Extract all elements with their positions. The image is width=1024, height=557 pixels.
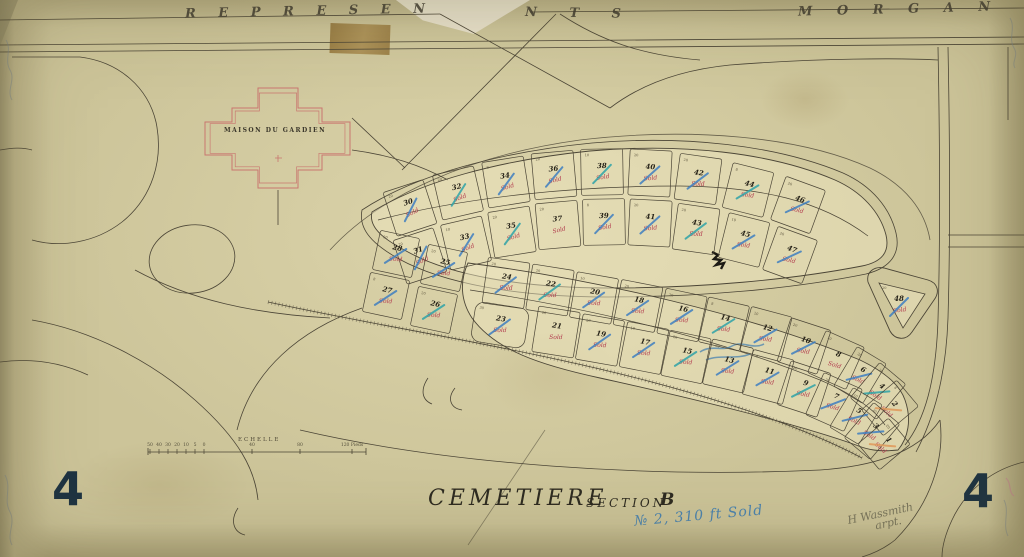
plot-dimension: 20 [383, 235, 388, 240]
pink-pencil-mark [1006, 478, 1014, 496]
plot-dimension: 10 [630, 326, 635, 331]
plot-number: 21 [551, 320, 563, 331]
plot-dimension: 20 [624, 284, 629, 289]
plot-dimension: 20 [388, 194, 393, 199]
plot-dimension: 20 [683, 158, 688, 163]
scale-bar [148, 448, 366, 455]
plot-dimension: 20 [792, 323, 797, 328]
map-title: CEMETIERE [428, 486, 608, 511]
scale-tick-label: 0 [203, 443, 206, 448]
scale-tick-label: 120 Pieds [341, 443, 363, 448]
sheet-number-left: 4 [52, 462, 84, 516]
plot-dimension: 20 [491, 262, 496, 267]
scale-tick-label: 50 [147, 443, 153, 448]
plot-dimension: 20 [681, 208, 686, 213]
plot-dimension: 10 [580, 276, 585, 281]
plot-number: 40 [645, 162, 655, 172]
plot-dimension: 20 [539, 207, 544, 211]
plot-dimension: 30 [479, 306, 484, 311]
plot-dimension: 20 [753, 311, 758, 316]
plot-dimension: 20 [542, 311, 547, 316]
plot-dimension: 8 [486, 166, 489, 170]
scale-tick-label: 10 [183, 443, 189, 448]
scale-tick-label: 5 [194, 443, 197, 448]
plot-number: 39 [599, 211, 609, 220]
plot-dimension: 20 [634, 153, 639, 157]
plot-dimension: 20 [536, 269, 541, 274]
cemetery-plot: 2620Sold [410, 286, 457, 333]
plot-dimension: 10 [827, 336, 833, 341]
map-sheet: 3020Sold3220Sold348Sold3620Sold3810Sold4… [0, 0, 1024, 557]
map-section-label: SECTION [586, 496, 666, 510]
scale-tick-label: 40 [249, 443, 255, 448]
plot-number: 41 [645, 212, 655, 221]
plot-number: 48 [894, 294, 904, 303]
maison-outline [205, 88, 350, 188]
map-section-letter: B [660, 490, 674, 510]
plot-dimension: 20 [492, 215, 497, 220]
maison-label: MAISON DU GARDIEN [224, 127, 326, 134]
scale-tick-label: 40 [156, 443, 162, 448]
street-name-mid: N T S [525, 5, 635, 22]
plot-dimension: 20 [882, 286, 886, 290]
scale-tick-label: 20 [174, 443, 180, 448]
plot-dimension: 20 [586, 318, 591, 323]
map-linework: 3020Sold3220Sold348Sold3620Sold3810Sold4… [0, 0, 1024, 557]
plot-dimension: 20 [634, 203, 639, 207]
plot-dimension: 20 [421, 291, 426, 296]
plot-dimension: 8 [587, 203, 589, 207]
sheet-number-right: 4 [962, 464, 994, 518]
plot-dimension: 8 [373, 277, 376, 281]
lower-block-outline [462, 263, 908, 451]
scale-tick-label: 80 [297, 443, 303, 448]
plot-dimension: 8 [711, 302, 714, 306]
plot-number: 37 [552, 214, 563, 224]
plot-dimension: 20 [857, 352, 863, 358]
plot-dimension: 20 [668, 293, 673, 298]
plot-dimension: 10 [585, 153, 590, 157]
plot-dimension: 20 [535, 157, 540, 161]
scale-label: ECHELLE [238, 437, 280, 443]
sold-annotation: Sold [549, 334, 563, 341]
cemetery-plot: 278Sold [362, 272, 409, 319]
scale-tick-label: 30 [165, 443, 171, 448]
plot-number: 38 [597, 161, 607, 170]
